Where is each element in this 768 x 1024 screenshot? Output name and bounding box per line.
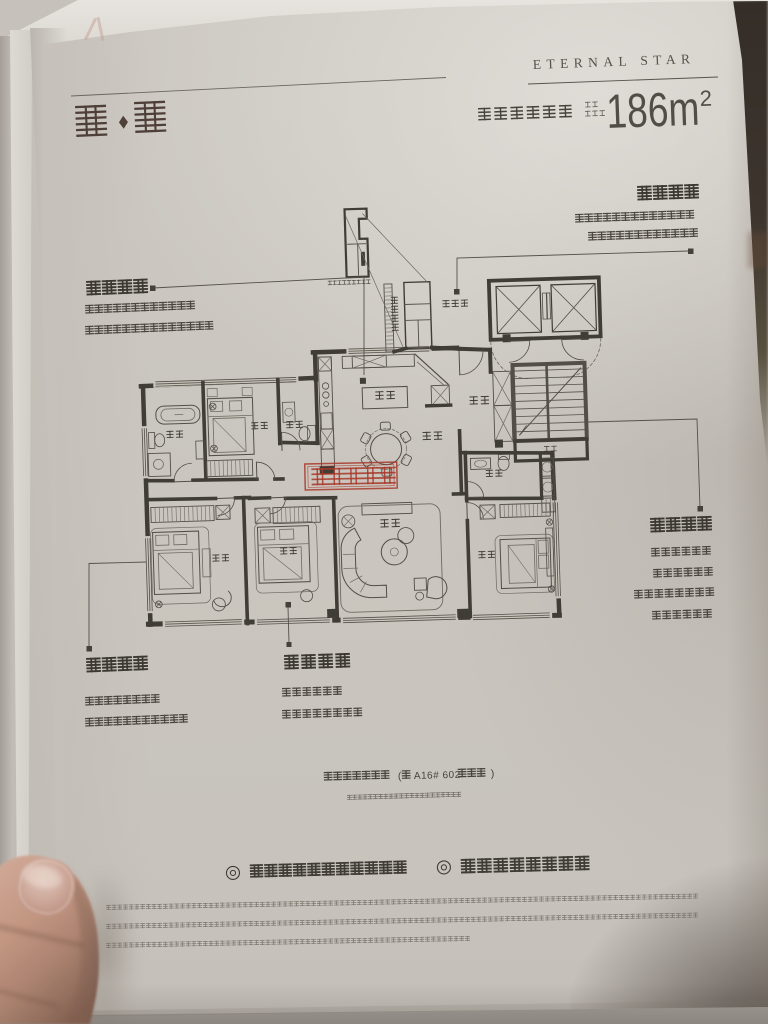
svg-text:2: 2: [699, 86, 712, 111]
svg-text:186m: 186m: [605, 83, 700, 139]
svg-text:): ): [491, 768, 495, 780]
svg-text:ETERNAL STAR: ETERNAL STAR: [533, 51, 696, 72]
svg-text:(: (: [398, 770, 402, 782]
svg-text:A16# 602: A16# 602: [414, 770, 461, 782]
